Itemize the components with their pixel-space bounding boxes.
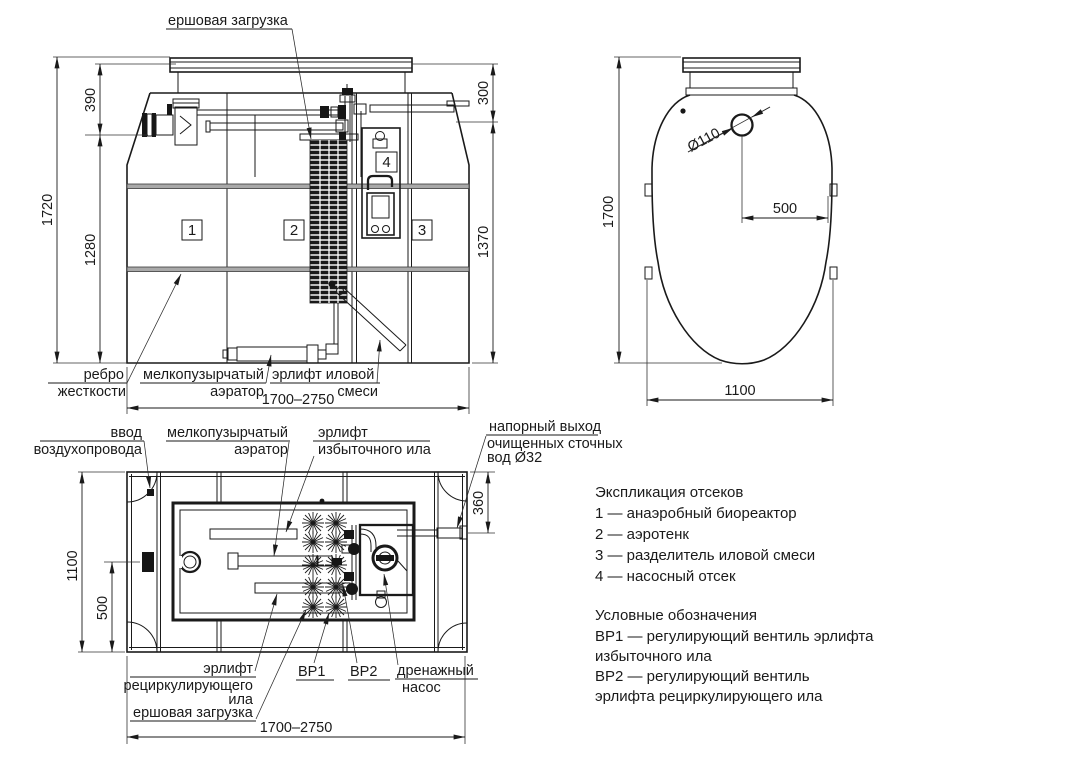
drawing-canvas: 1 2 3 4 1720 390 1280 300 1370 [0,0,1080,772]
compartment-1-label: 1 [188,222,196,239]
legend-bp1-line1: ВР1 — регулирующий вентиль эрлифта [595,628,874,645]
callout-airlift-line1: эрлифт иловой [272,367,374,383]
callout-aerator-line1: мелкопузырчатый [143,367,264,383]
legend-item-4: 4 — насосный отсек [595,568,736,585]
legend-title-compartments: Экспликация отсеков [595,484,743,501]
callout-drain-pump-line2: насос [402,680,441,696]
callout-outlet-line1: напорный выход [489,419,602,435]
technical-drawing-svg: 1 2 3 4 1720 390 1280 300 1370 [0,0,1080,772]
callout-aerator-plan-line1: мелкопузырчатый [167,425,288,441]
legend-item-3: 3 — разделитель иловой смеси [595,547,815,564]
dim-1280: 1280 [83,234,99,266]
callout-air-inlet-line2: воздухопровода [34,442,143,458]
callout-aerator-plan-line2: аэратор [234,442,288,458]
callout-brush-loading-plan: ершовая загрузка [133,705,254,721]
dim-width-plan: 1700–2750 [260,720,333,736]
dim-1370: 1370 [476,226,492,258]
callout-recirc-line1: эрлифт [203,661,253,677]
inlet-bell-top [142,552,154,572]
callout-drain-pump-line1: дренажный [397,663,474,679]
legend-bp2-line2: эрлифта рециркулирующего ила [595,688,823,705]
callout-excess-airlift-line1: эрлифт [318,425,368,441]
stiffening-rib-lower [127,267,469,272]
dim-300: 300 [476,81,492,105]
legend-title-symbols: Условные обозначения [595,607,757,624]
callout-aerator-line2: аэратор [210,384,264,400]
callout-bp2: ВР2 [350,664,377,680]
vent-dot [680,108,685,113]
dim-1100-plan: 1100 [65,550,81,581]
callout-rib-line2: жесткости [58,384,126,400]
callout-airlift-line2: смеси [337,384,378,400]
dim-500-side: 500 [773,201,797,217]
air-inlet-dot [147,489,154,496]
legend-item-1: 1 — анаэробный биореактор [595,505,797,522]
stiffening-rib-upper [127,184,469,189]
callout-brush-loading-top: ершовая загрузка [168,13,289,29]
dim-1100-side: 1100 [724,383,755,399]
dim-1720: 1720 [40,194,56,226]
compartment-4-label: 4 [382,154,390,171]
compartment-3-label: 3 [418,222,426,239]
dim-390: 390 [83,88,99,112]
dim-width-front: 1700–2750 [262,392,335,408]
callout-excess-airlift-line2: избыточного ила [318,442,432,458]
dim-360: 360 [471,491,487,515]
callout-air-inlet-line1: ввод [111,425,143,441]
dim-500-plan: 500 [95,596,111,620]
legend-bp2-line1: ВР2 — регулирующий вентиль [595,668,810,685]
dim-1700: 1700 [601,196,617,228]
callout-outlet-line3: вод Ø32 [487,450,542,466]
legend-item-2: 2 — аэротенк [595,526,689,543]
callout-bp1: ВР1 [298,664,325,680]
compartment-2-label: 2 [290,222,298,239]
callout-rib-line1: ребро [84,367,124,383]
paper-background [0,0,1080,772]
legend-bp1-line2: избыточного ила [595,648,712,665]
